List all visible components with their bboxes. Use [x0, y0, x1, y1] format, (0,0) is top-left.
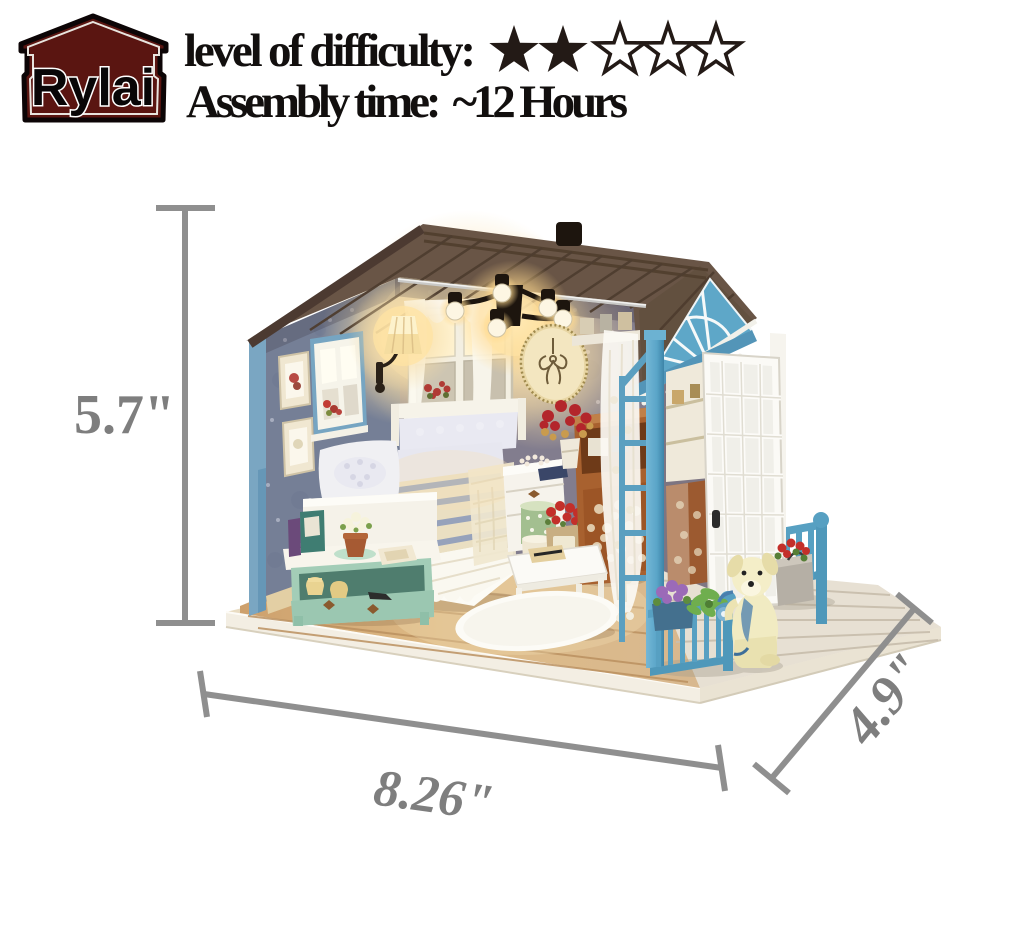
svg-text:5.7": 5.7"	[74, 384, 175, 446]
svg-text:Assembly time: ~12 Hours: Assembly time: ~12 Hours	[186, 76, 628, 128]
svg-text:Rylai: Rylai	[31, 59, 155, 117]
svg-text:level of difficulty:: level of difficulty:	[184, 25, 476, 77]
